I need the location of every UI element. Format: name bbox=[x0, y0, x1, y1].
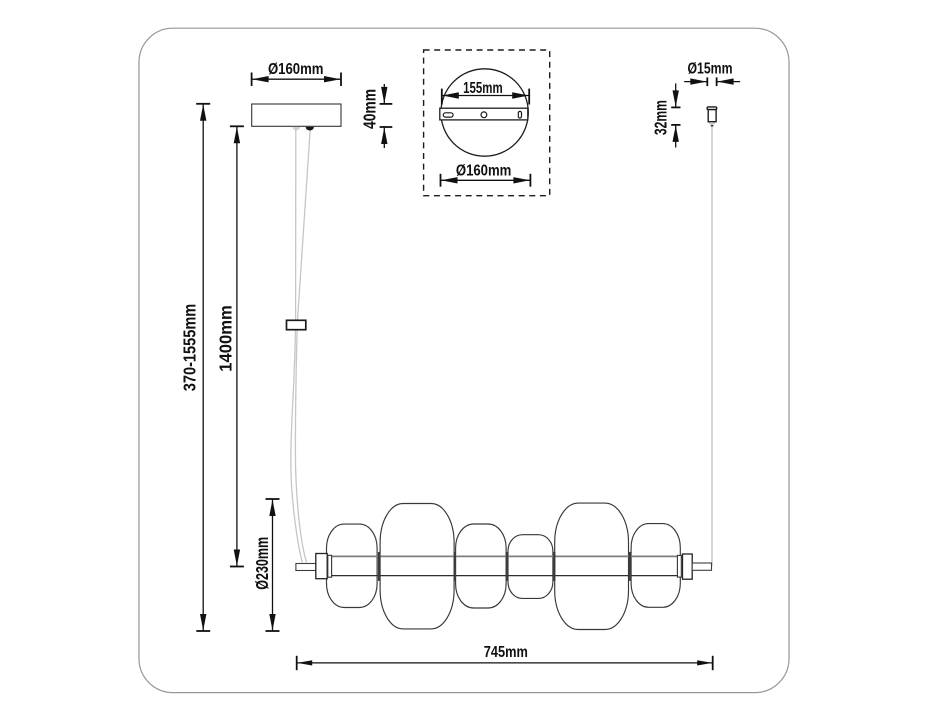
svg-text:155mm: 155mm bbox=[463, 80, 503, 97]
svg-text:40mm: 40mm bbox=[359, 89, 379, 129]
svg-text:745mm: 745mm bbox=[484, 644, 528, 661]
svg-text:Ø15mm: Ø15mm bbox=[688, 60, 733, 77]
svg-text:32mm: 32mm bbox=[651, 100, 671, 135]
svg-text:370-1555mm: 370-1555mm bbox=[179, 304, 199, 392]
svg-text:Ø160mm: Ø160mm bbox=[268, 61, 324, 78]
svg-text:1400mm: 1400mm bbox=[216, 305, 236, 372]
svg-text:Ø160mm: Ø160mm bbox=[456, 163, 512, 180]
svg-text:Ø230mm: Ø230mm bbox=[252, 537, 272, 590]
